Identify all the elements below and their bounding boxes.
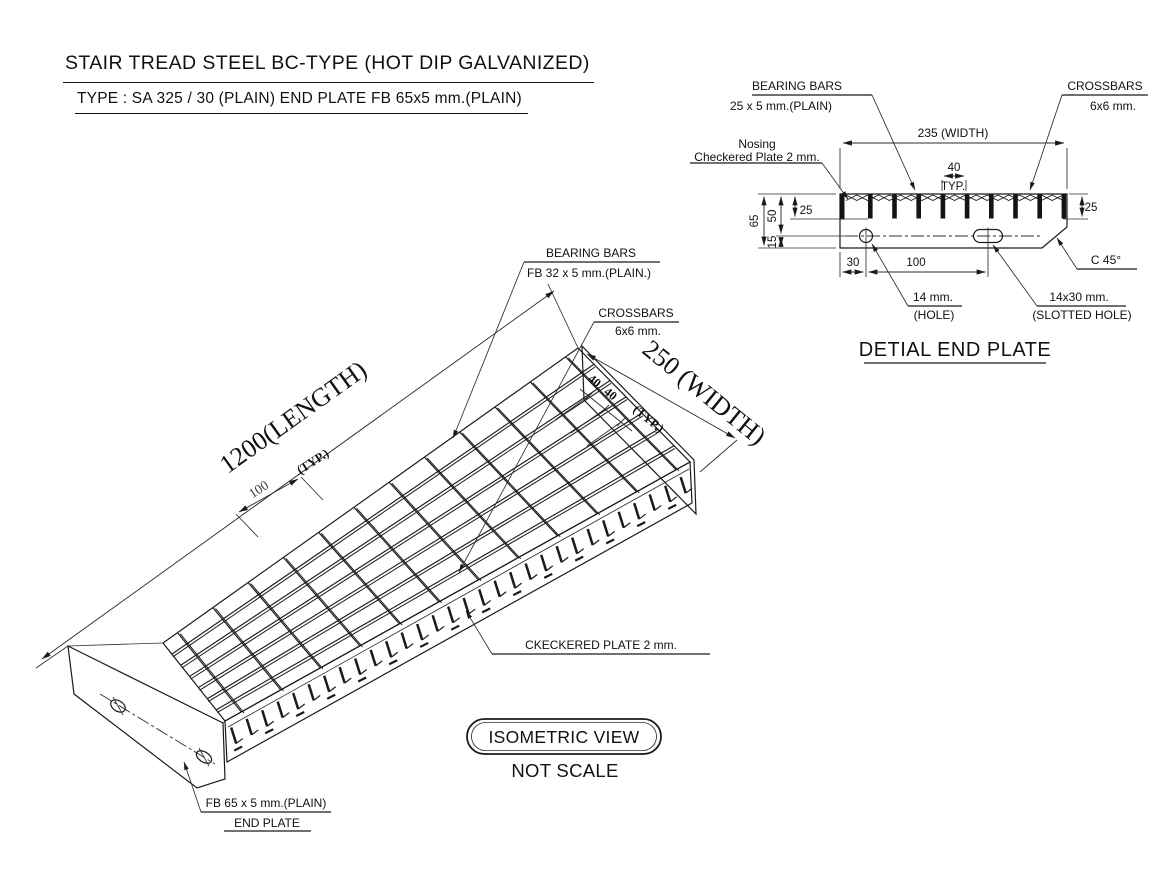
- tread-slash: [479, 589, 484, 605]
- tread-flick: [577, 549, 584, 554]
- crossbar-line: [180, 634, 244, 713]
- not-scale-note: NOT SCALE: [511, 760, 618, 781]
- detail-hole-note: (HOLE): [914, 308, 955, 322]
- checkered-plate-label: CKECKERED PLATE 2 mm.: [525, 638, 677, 652]
- tread-flick: [422, 635, 429, 640]
- tread-flick: [515, 583, 522, 588]
- detail-bearing-bars-label: BEARING BARS: [752, 79, 842, 93]
- plate-to-grating-edge: [68, 643, 163, 646]
- crossbar-line: [283, 557, 360, 645]
- nosing-plate: [840, 194, 845, 220]
- detail-pitch-dim: 40: [948, 162, 961, 174]
- tread-flick: [469, 609, 476, 614]
- tread-slash: [650, 494, 655, 510]
- detail-nosing-label: Nosing: [738, 137, 775, 151]
- tread-slash: [355, 658, 360, 674]
- tread-slash: [448, 607, 453, 623]
- end-plate-label: END PLATE: [234, 816, 300, 830]
- tread-slash: [417, 624, 422, 640]
- detail-edge-dim: 30: [847, 257, 860, 269]
- isometric-caption: ISOMETRIC VIEW: [488, 727, 639, 747]
- iso-bearing-bars-size: FB 32 x 5 mm.(PLAIN.): [527, 266, 651, 280]
- tread-dash: [451, 626, 459, 630]
- technical-drawing-canvas: BEARING BARS 25 x 5 mm.(PLAIN) CROSSBARS…: [0, 0, 1170, 870]
- tread-flick: [670, 497, 677, 502]
- tread-slash: [619, 512, 624, 528]
- detail-bearing-bar: [965, 195, 970, 219]
- tread-flick: [608, 531, 615, 536]
- crossbar-line: [216, 609, 284, 691]
- tread-flick: [298, 704, 305, 709]
- detail-crossbars-size: 6x6 mm.: [1090, 99, 1136, 113]
- detail-chamfer-label: C 45°: [1091, 253, 1121, 267]
- tread-dash: [575, 557, 583, 561]
- tread-flick: [407, 644, 414, 649]
- plate-slot-tick: [199, 748, 209, 766]
- tread-slash: [526, 564, 531, 580]
- drawing-sheet: STAIR TREAD STEEL BC-TYPE (HOT DIP GALVA…: [0, 0, 1170, 870]
- detail-bearing-bar: [941, 195, 946, 219]
- tread-flick: [546, 566, 553, 571]
- iso-bearing-bars-label: BEARING BARS: [546, 246, 636, 260]
- tread-flick: [329, 687, 336, 692]
- detail-lower-dim: 15: [767, 236, 779, 249]
- tread-flick: [531, 575, 538, 580]
- tread-flick: [314, 695, 321, 700]
- tread-dash: [513, 591, 521, 595]
- crossbar-line: [178, 633, 242, 712]
- crossbar-line: [248, 583, 320, 668]
- tread-dash: [420, 643, 428, 647]
- tread-slash: [278, 702, 283, 718]
- tread-dash: [606, 539, 614, 543]
- tread-flick: [438, 626, 445, 631]
- tread-slash: [247, 719, 252, 735]
- detail-crossbars-label: CROSSBARS: [1067, 79, 1142, 93]
- isometric-view: 1200(LENGTH) 250 (WIDTH) 100 (TYP.): [36, 246, 772, 831]
- detail-hole-pitch-dim: 100: [906, 257, 925, 269]
- detail-end-plate-view: BEARING BARS 25 x 5 mm.(PLAIN) CROSSBARS…: [690, 79, 1148, 363]
- tread-slash: [324, 676, 329, 692]
- tread-flick: [267, 721, 274, 726]
- tread-slash: [572, 538, 577, 554]
- detail-width-dim: 235 (WIDTH): [918, 126, 989, 140]
- tread-slash: [510, 572, 515, 588]
- detail-slot-size: 14x30 mm.: [1049, 290, 1108, 304]
- tread-slash: [262, 710, 267, 726]
- tread-flick: [283, 713, 290, 718]
- bar-pitch-typ: (TYP.): [630, 402, 666, 435]
- tread-slash: [588, 529, 593, 545]
- crossbar-line: [251, 584, 323, 669]
- tread-slash: [371, 650, 376, 666]
- tread-flick: [391, 652, 398, 657]
- tread-flick: [593, 540, 600, 545]
- crossbar-line: [213, 608, 281, 690]
- crossbar-line: [286, 558, 363, 646]
- bearing-bar-line: [208, 432, 659, 701]
- bar-pitch-a-text: 40: [585, 372, 604, 391]
- bearing-bar-line: [217, 448, 675, 712]
- detail-slot-note: (SLOTTED HOLE): [1032, 308, 1131, 322]
- detail-pitch-typ: TYP.: [941, 181, 965, 193]
- iso-crossbars-size: 6x6 mm.: [615, 324, 661, 338]
- tread-dash: [265, 729, 273, 733]
- detail-bearing-bars-size: 25 x 5 mm.(PLAIN): [730, 99, 832, 113]
- detail-height-dim: 65: [749, 215, 761, 228]
- tread-dash: [296, 712, 304, 716]
- crossbar-line: [354, 507, 439, 602]
- end-plate-outline: [840, 194, 1067, 248]
- detail-nosing-size: Checkered Plate 2 mm.: [694, 150, 819, 164]
- tread-slash: [557, 546, 562, 562]
- tread-dash: [668, 505, 676, 509]
- length-dim-text: 1200(LENGTH): [214, 355, 372, 479]
- tread-slash: [433, 615, 438, 631]
- detail-bar-depth-right: 25: [1085, 202, 1098, 214]
- tread-flick: [453, 618, 460, 623]
- detail-crossbar-lattice: [846, 195, 1063, 201]
- tread-flick: [345, 678, 352, 683]
- left-end-plate: [68, 646, 225, 788]
- iso-crossbars-label: CROSSBARS: [598, 306, 673, 320]
- detail-caption: DETIAL END PLATE: [859, 339, 1052, 361]
- tread-slash: [681, 477, 686, 493]
- tread-flick: [484, 600, 491, 605]
- detail-hole-size: 14 mm.: [913, 290, 953, 304]
- tread-flick: [624, 523, 631, 528]
- iso-bearing-bars-callout: [453, 262, 660, 438]
- detail-bar-depth-left: 25: [800, 205, 813, 217]
- tread-flick: [360, 669, 367, 674]
- detail-upper-dim: 50: [767, 210, 779, 223]
- tread-dash: [358, 677, 366, 681]
- length-dimension: [36, 284, 578, 668]
- tread-flick: [252, 730, 259, 735]
- tread-slash: [541, 555, 546, 571]
- tread-slash: [309, 684, 314, 700]
- tread-flick: [562, 557, 569, 562]
- crossbar-pitch-typ: (TYP.): [294, 446, 331, 477]
- tread-slash: [386, 641, 391, 657]
- crossbar-zigzag: [846, 195, 1063, 201]
- crossbar-zigzag: [846, 195, 1063, 201]
- tread-dash: [637, 522, 645, 526]
- detail-bearing-bar: [1062, 195, 1067, 219]
- tread-dash: [234, 747, 242, 751]
- tread-flick: [500, 592, 507, 597]
- tread-slash: [293, 693, 298, 709]
- checker-tread-pattern: [231, 477, 692, 750]
- tread-flick: [236, 739, 243, 744]
- end-plate-size-label: FB 65 x 5 mm.(PLAIN): [206, 796, 327, 810]
- tread-slash: [231, 728, 236, 744]
- tread-flick: [639, 514, 646, 519]
- tread-flick: [655, 505, 662, 510]
- bearing-bar-line: [216, 446, 674, 710]
- tread-slash: [603, 520, 608, 536]
- tread-dash: [482, 608, 490, 612]
- tread-slash: [665, 486, 670, 502]
- tread-slash: [634, 503, 639, 519]
- tread-slash: [495, 581, 500, 597]
- detail-bearing-bar: [1037, 195, 1042, 219]
- tread-slash: [340, 667, 345, 683]
- tread-dash: [389, 660, 397, 664]
- tread-slash: [402, 633, 407, 649]
- tread-flick: [376, 661, 383, 666]
- tread-dash: [327, 695, 335, 699]
- tread-dash: [544, 574, 552, 578]
